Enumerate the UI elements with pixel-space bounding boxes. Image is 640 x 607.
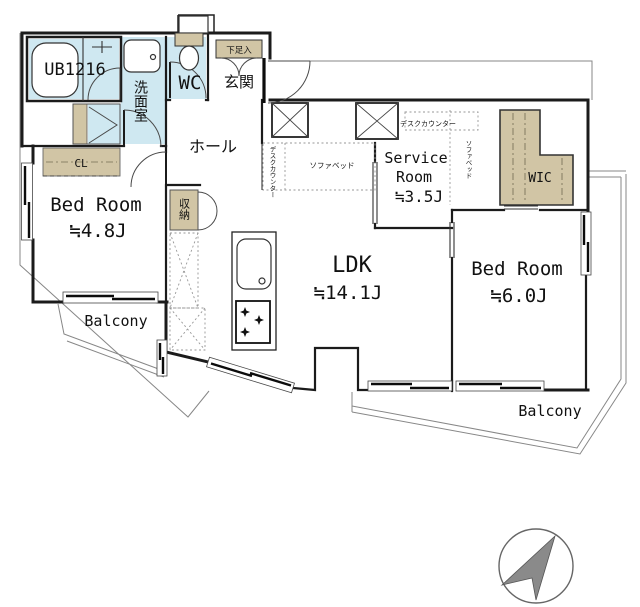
bedroom-west-label: Bed Room [50,194,142,216]
balcony-west-label: Balcony [84,312,147,330]
hall-label: ホール [189,137,237,156]
window-bedroom-west-left [22,163,33,240]
washer-side-panel [73,104,87,144]
toilet-tank [175,33,203,46]
kitchen-faucet-icon [259,278,265,284]
ldk-sofa-bed-label: ソファベッド [310,161,355,170]
bedroom-west-door-swing [131,152,166,187]
service-room-label-1: Service [384,149,447,167]
washroom-label: 洗面室 [132,80,148,122]
wic-label: WIC [528,171,551,186]
entrance-door-swing [268,61,310,103]
toilet-alcove [179,16,208,33]
ldk-size: ≒14.1J [314,282,383,304]
service-desk-counter-label: デスクカウンター [400,119,456,128]
bedroom-east-size: ≒6.0J [490,285,547,307]
closet-cl-label: CL [74,157,88,170]
stove [236,301,270,343]
wc-label: WC [179,72,202,94]
floor-plan-page: UB1216 洗面室 WC 玄関 下足入 ホール CL 収納 Bed Room … [0,0,640,607]
window-bedroom-east-south [456,381,544,391]
service-sofa-bed-label: ソファベッド [464,140,472,179]
compass [499,529,573,603]
kitchen-sink [237,239,271,289]
compass-north-needle [502,536,555,600]
vanity-faucet-icon [151,55,156,60]
floor-plan: UB1216 洗面室 WC 玄関 下足入 ホール CL 収納 Bed Room … [0,0,640,607]
shaft-boxes [272,103,398,139]
service-room-size: ≒3.5J [395,187,443,206]
window-bedroom-west-bottom [63,292,158,303]
ldk-desk-counter-label: デスクカウンター [268,145,276,198]
service-room-label-2: Room [396,168,432,186]
bedroom-east-label: Bed Room [471,258,563,280]
window-ldk-south [368,381,452,391]
window-bedroom-east-right [581,212,591,275]
ldk-label: LDK [332,253,372,278]
storage-label: 収納 [178,198,191,221]
balcony-south-label: Balcony [518,402,581,420]
bedroom-west-size: ≒4.8J [69,220,126,242]
toilet-bowl [180,46,199,70]
unit-bath-label: UB1216 [44,60,105,80]
entrance-label: 玄関 [224,73,254,91]
storage-door-swing [198,192,217,230]
shoe-cabinet-label: 下足入 [226,46,252,56]
